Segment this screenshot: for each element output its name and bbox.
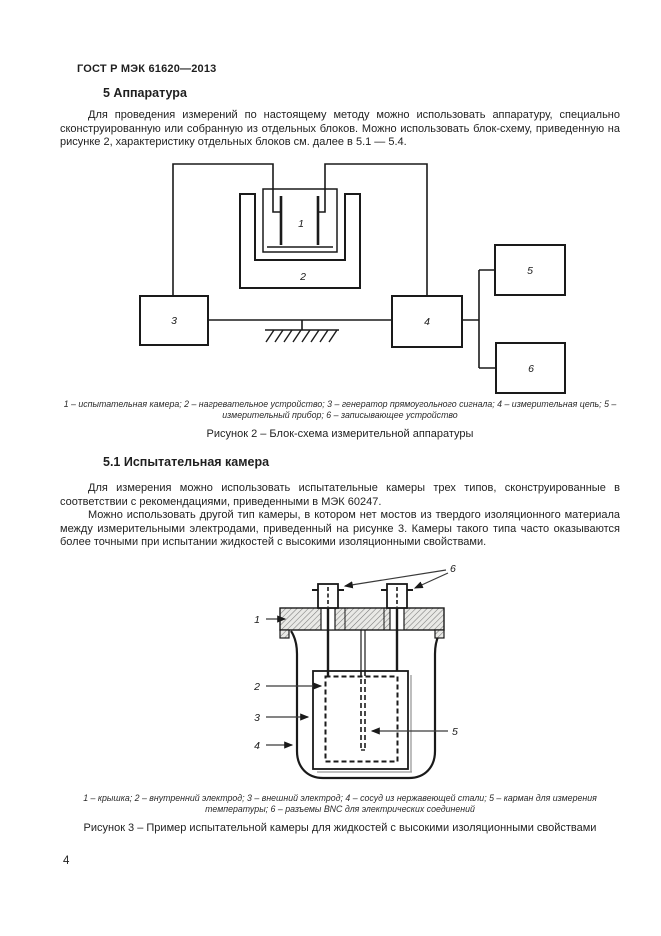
fig2-label-generator: 3 xyxy=(171,315,177,327)
document-page: ГОСТ Р МЭК 61620—2013 5 Аппаратура Для п… xyxy=(0,0,661,936)
figure-2-diagram: 1 2 3 4 5 6 xyxy=(0,158,661,398)
lid xyxy=(280,608,444,638)
figure-2-caption: Рисунок 2 – Блок-схема измерительной апп… xyxy=(60,428,620,440)
paragraph-text: Для проведения измерений по настоящему м… xyxy=(60,109,620,150)
fig2-label-recorder: 6 xyxy=(528,363,534,375)
figure-3-diagram: 1 2 3 4 5 6 xyxy=(0,556,661,794)
fig2-label-chamber: 1 xyxy=(298,218,304,230)
paragraph-text: Для измерения можно использовать испытат… xyxy=(60,482,620,509)
wire-circuit-to-right-electrode xyxy=(318,164,427,296)
fig2-label-meter: 5 xyxy=(527,265,533,277)
ground-symbol xyxy=(265,320,339,342)
temperature-pocket xyxy=(361,630,365,750)
fig3-label-temperature-pocket: 5 xyxy=(452,726,458,738)
fig3-label-outer-electrode: 3 xyxy=(254,712,260,724)
fig3-label-bnc-connectors: 6 xyxy=(450,563,456,575)
wire-circuit-outputs xyxy=(462,270,496,368)
fig3-label-inner-electrode: 2 xyxy=(253,681,260,693)
bnc-connector-left xyxy=(312,584,344,608)
section-5-heading: 5 Аппаратура xyxy=(103,86,187,100)
fig2-label-measuring-circuit: 4 xyxy=(424,316,430,328)
figure-3-legend: 1 – крышка; 2 – внутренний электрод; 3 –… xyxy=(60,793,620,815)
section-5-1-heading: 5.1 Испытательная камера xyxy=(103,455,269,469)
bnc-connector-right xyxy=(381,584,413,608)
leader-lines xyxy=(266,570,448,745)
fig3-label-lid: 1 xyxy=(254,614,260,626)
figure-2-legend: 1 – испытательная камера; 2 – нагревател… xyxy=(60,399,620,421)
fig2-label-heater: 2 xyxy=(299,271,306,283)
figure-3-caption: Рисунок 3 – Пример испытательной камеры … xyxy=(60,822,620,834)
section-5-paragraph: Для проведения измерений по настоящему м… xyxy=(60,109,620,150)
page-number: 4 xyxy=(63,855,69,867)
section-5-1-paragraphs: Для измерения можно использовать испытат… xyxy=(60,482,620,550)
paragraph-text: Можно использовать другой тип камеры, в … xyxy=(60,509,620,550)
document-header: ГОСТ Р МЭК 61620—2013 xyxy=(77,63,217,75)
fig3-label-vessel: 4 xyxy=(254,740,260,752)
wire-generator-to-left-electrode xyxy=(173,164,281,296)
